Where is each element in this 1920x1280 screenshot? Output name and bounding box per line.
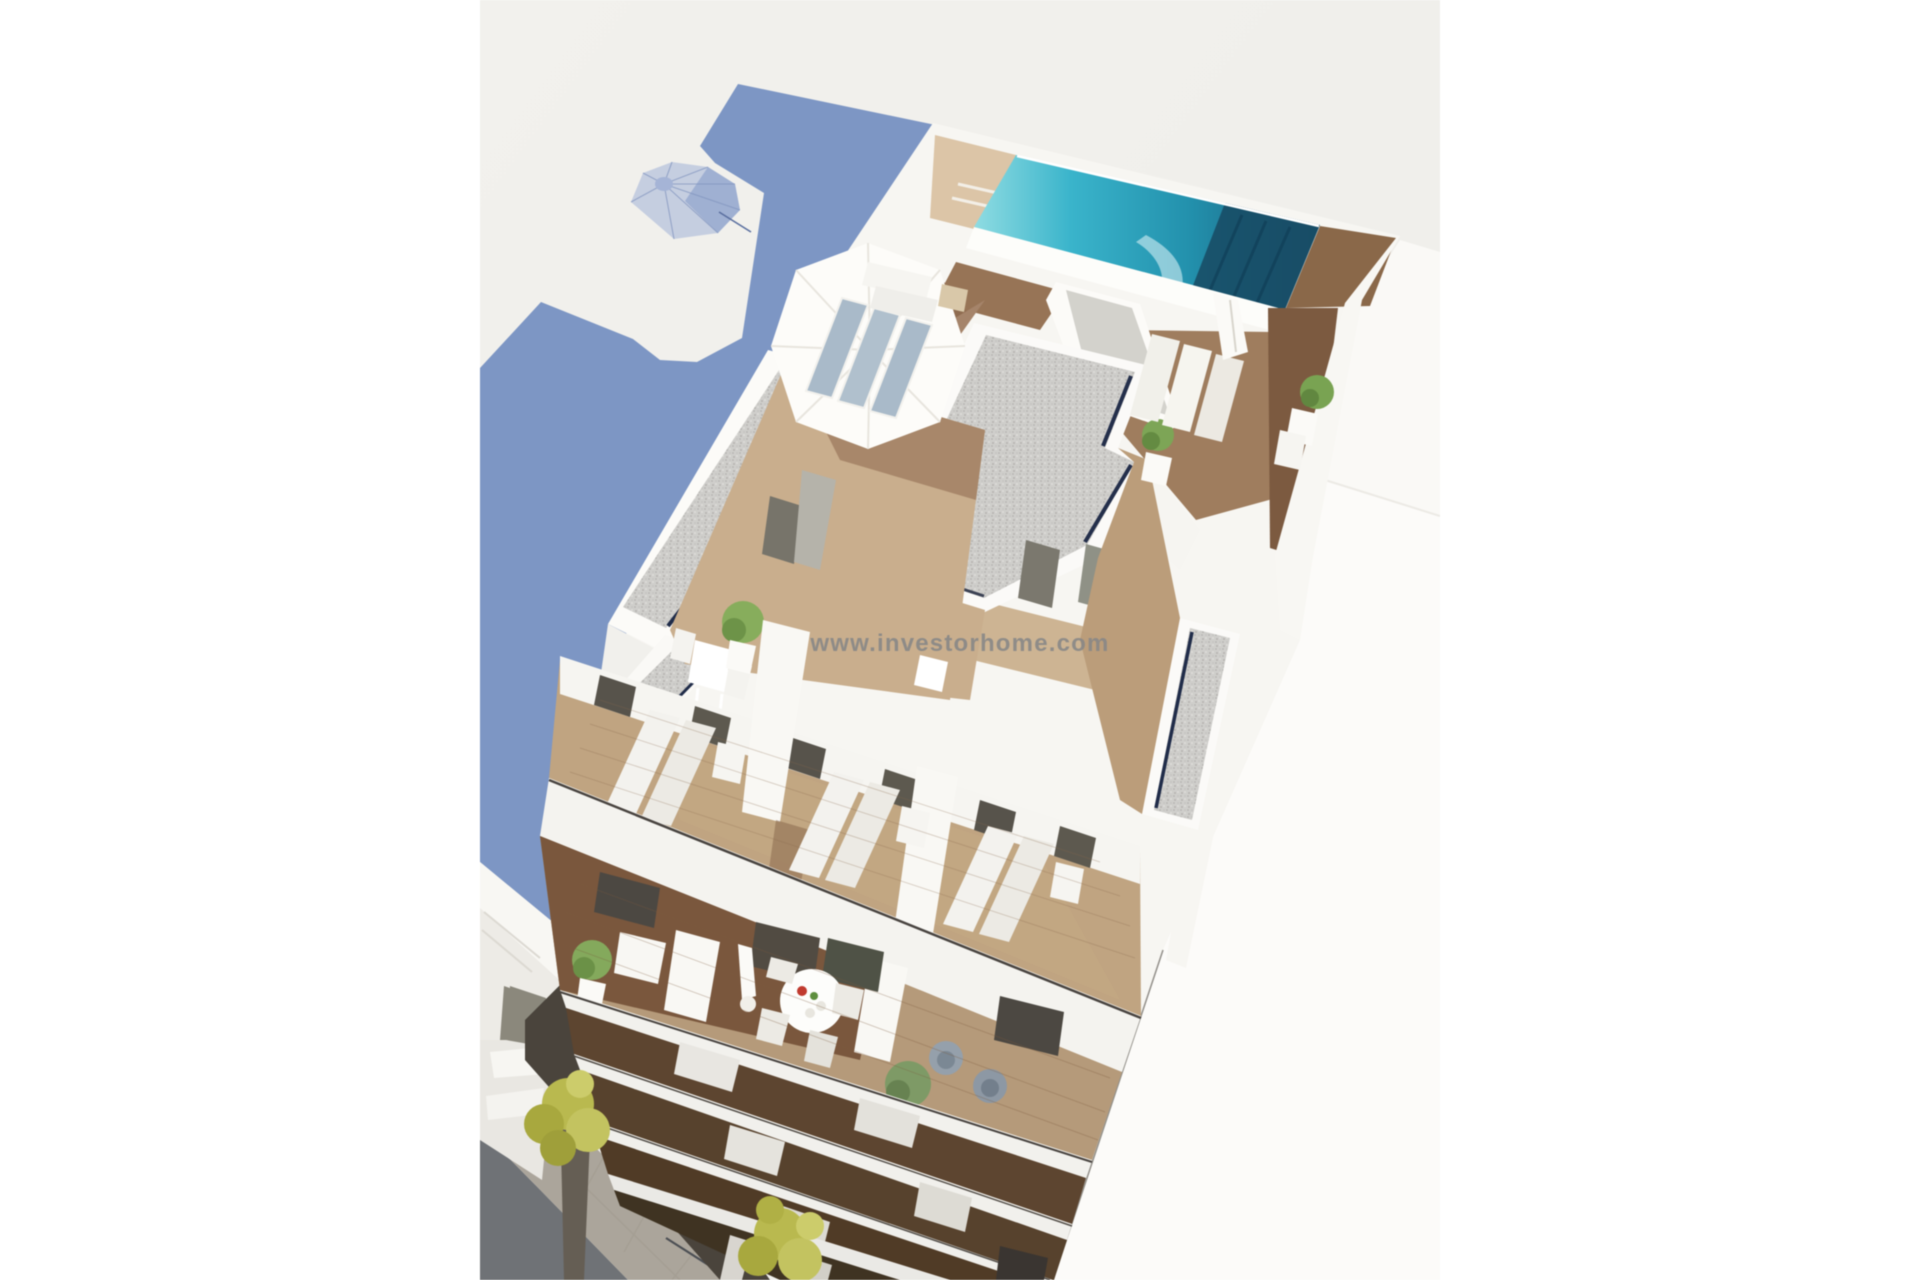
svg-text:www.investorhome.com: www.investorhome.com xyxy=(809,630,1109,657)
